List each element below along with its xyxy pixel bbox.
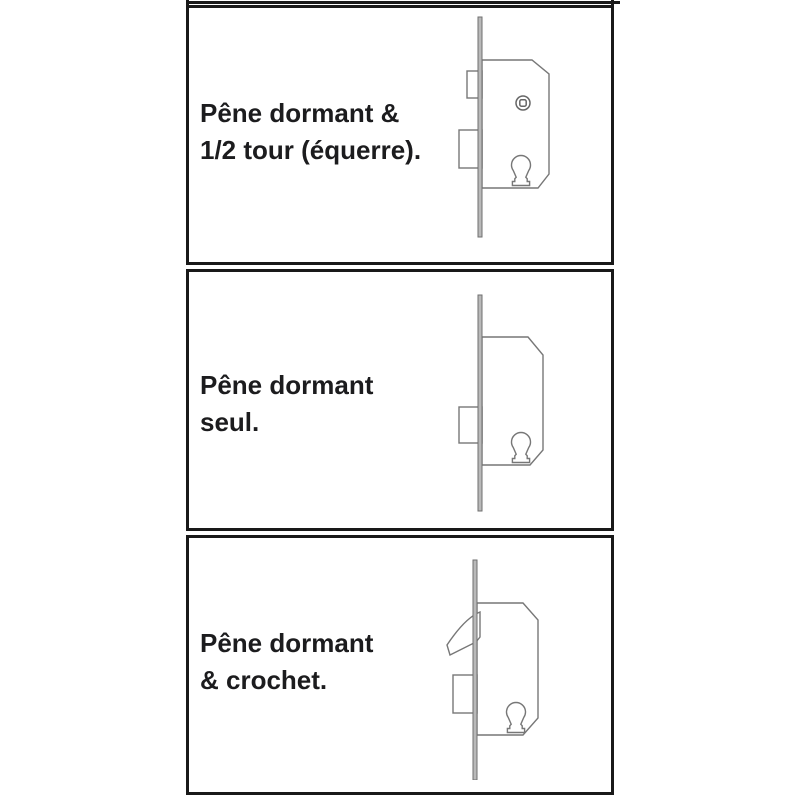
faceplate [478, 17, 482, 237]
panel-deadbolt-only: Pêne dormant seul. [186, 269, 614, 531]
panel-label-line1: Pêne dormant & [200, 95, 421, 132]
faceplate [478, 295, 482, 511]
lock-diagram-deadbolt-only [450, 284, 570, 514]
keyhole-icon [507, 703, 526, 733]
panel-label: Pêne dormant & crochet. [200, 625, 373, 699]
panel-label-line2: 1/2 tour (équerre). [200, 132, 421, 169]
panel-label-line2: & crochet. [200, 662, 373, 699]
panel-label: Pêne dormant & 1/2 tour (équerre). [200, 95, 421, 169]
panel-label-line2: seul. [200, 404, 373, 441]
panel-deadbolt-halfturn: Pêne dormant & 1/2 tour (équerre). [186, 5, 614, 265]
lock-diagram-deadbolt-halfturn [450, 10, 570, 240]
page: Pêne dormant & 1/2 tour (équerre). Pêne … [0, 0, 800, 800]
keyhole-icon [512, 433, 531, 463]
cropped-row-rule [186, 1, 620, 4]
panel-label-line1: Pêne dormant [200, 367, 373, 404]
panel-deadbolt-hook: Pêne dormant & crochet. [186, 535, 614, 795]
lock-diagram-deadbolt-hook [440, 550, 550, 780]
panel-label: Pêne dormant seul. [200, 367, 373, 441]
keyhole-icon [512, 156, 531, 186]
faceplate [473, 560, 477, 780]
panel-label-line1: Pêne dormant [200, 625, 373, 662]
